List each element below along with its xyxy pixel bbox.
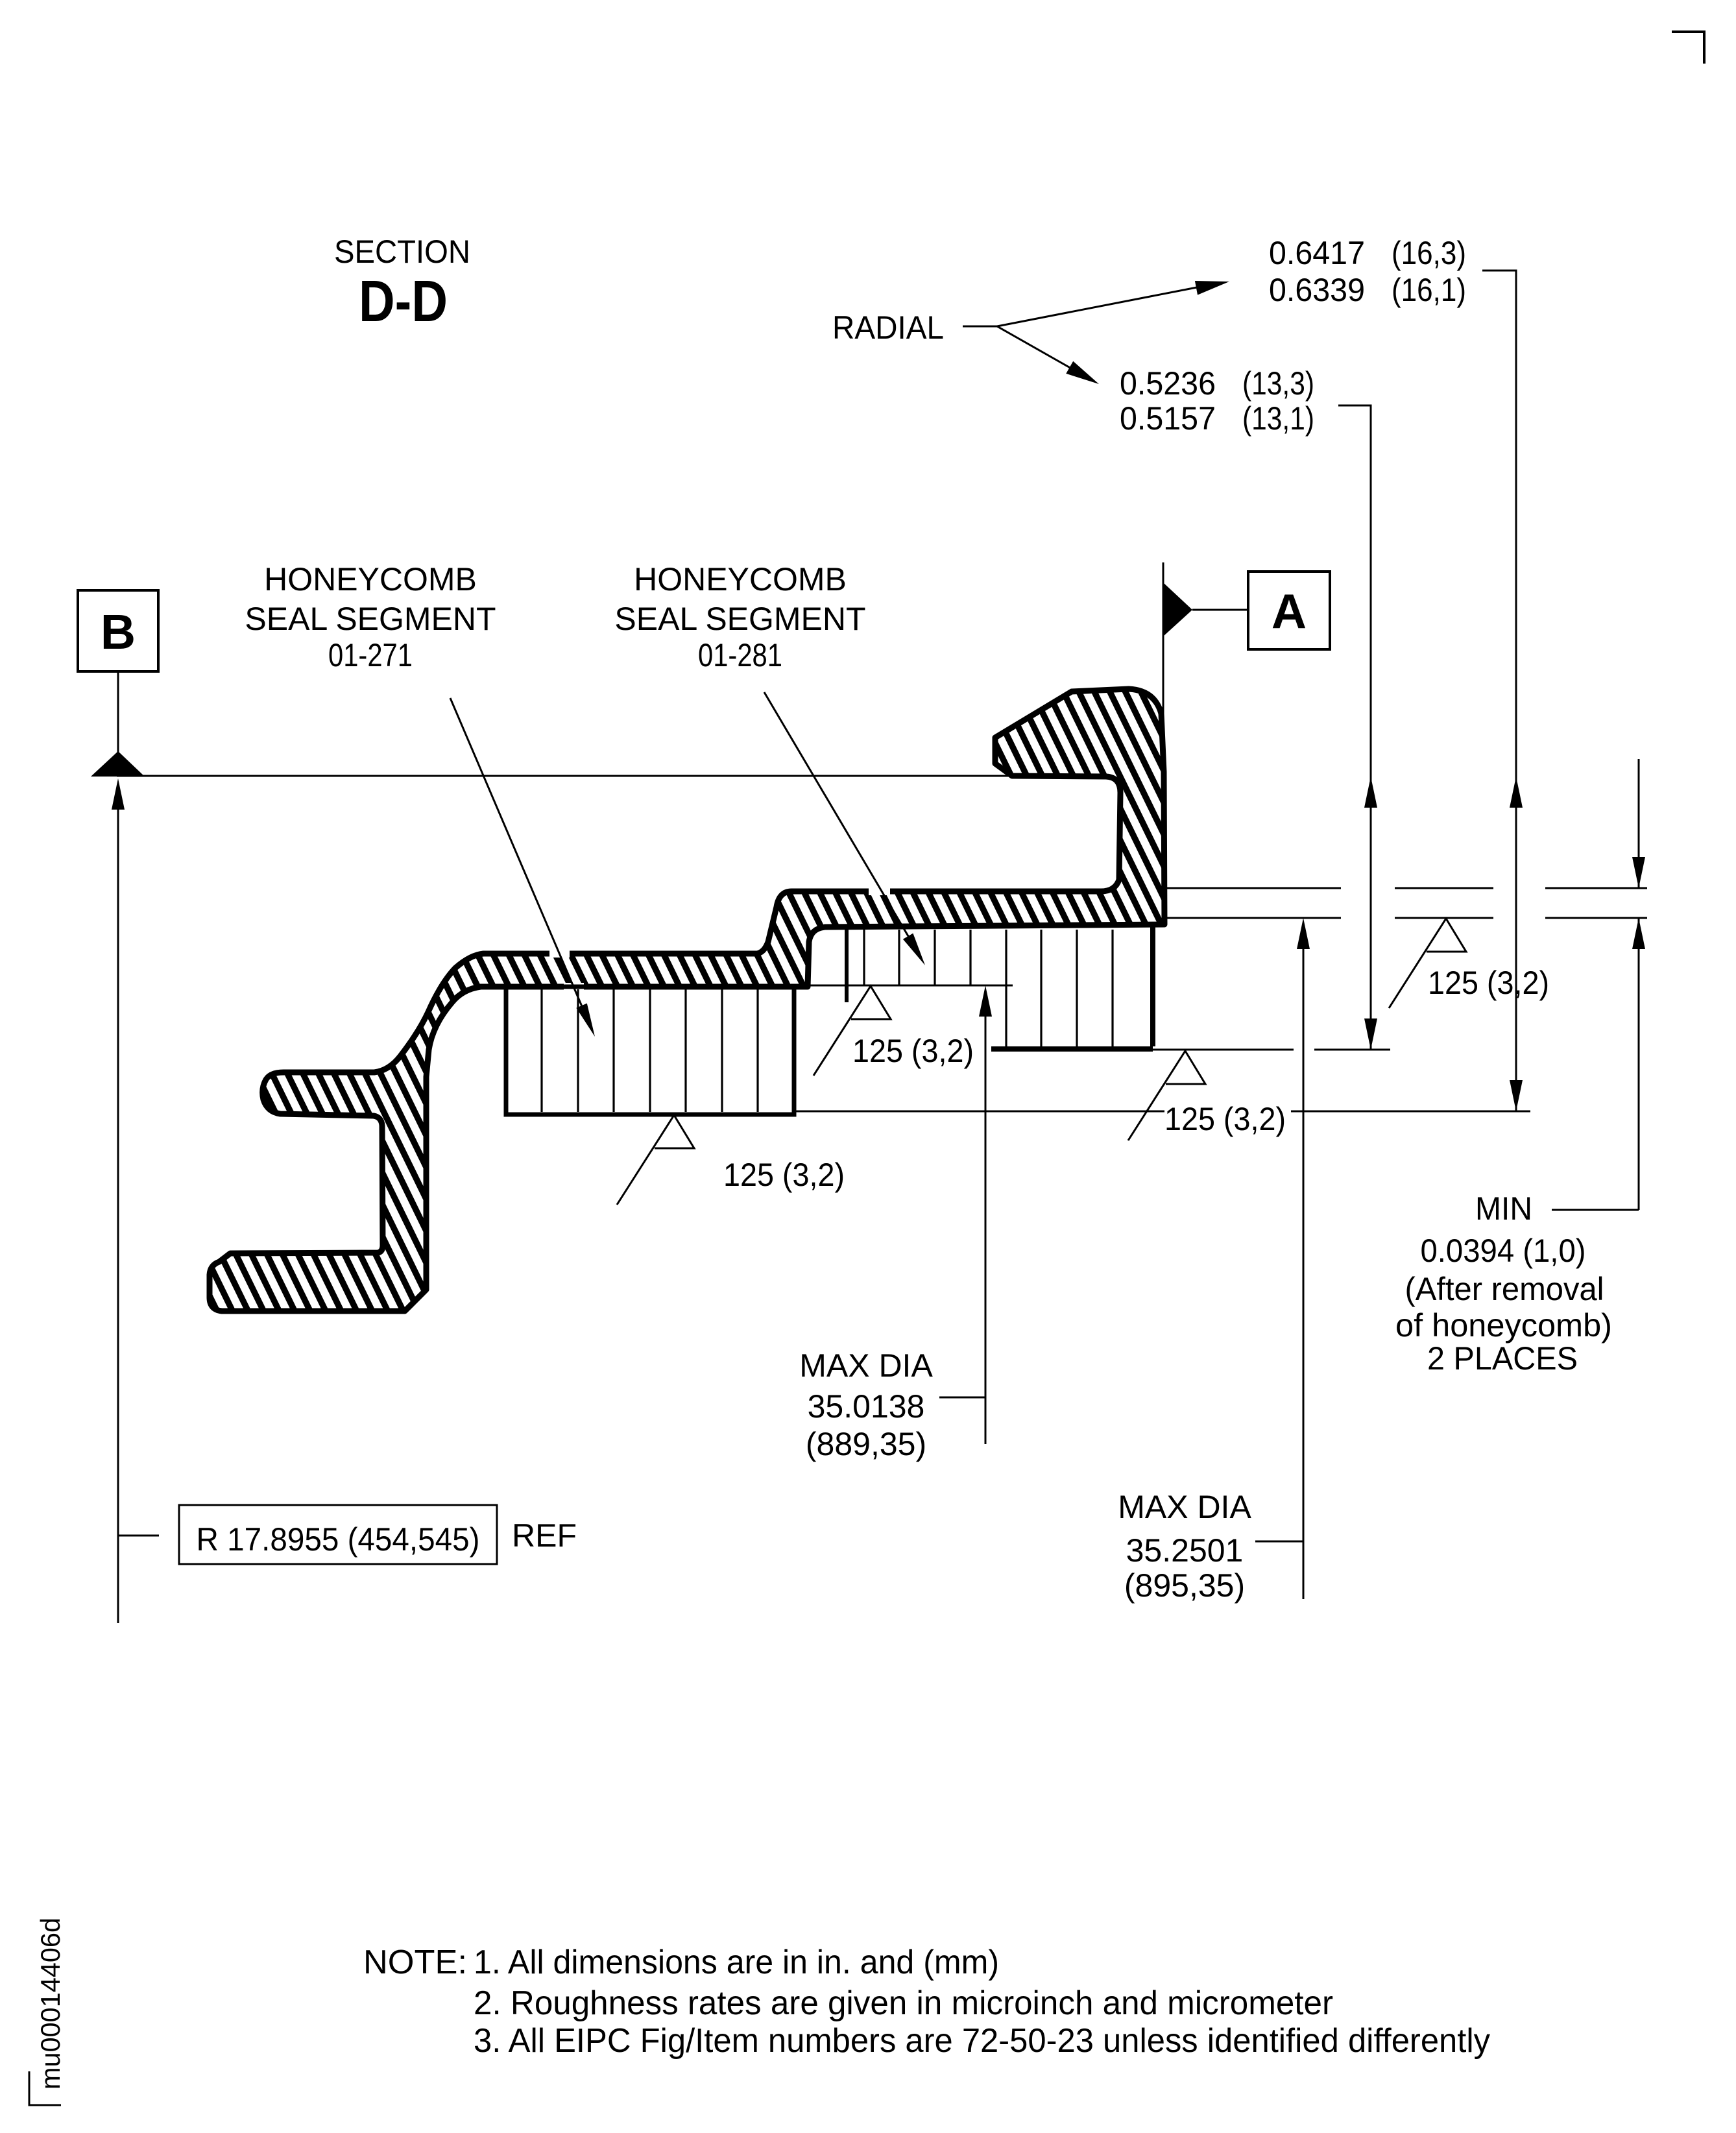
svg-text:0.6339: 0.6339 [1269, 272, 1365, 308]
svg-text:(After removal: (After removal [1405, 1271, 1604, 1307]
svg-text:35.0138: 35.0138 [808, 1388, 925, 1425]
svg-text:NOTE:: NOTE: [363, 1944, 467, 1981]
svg-text:SEAL SEGMENT: SEAL SEGMENT [614, 601, 865, 637]
svg-text:(13,3): (13,3) [1242, 365, 1314, 402]
svg-text:01-271: 01-271 [328, 637, 413, 673]
svg-text:2 PLACES: 2 PLACES [1427, 1340, 1578, 1377]
svg-text:(16,3): (16,3) [1392, 235, 1466, 271]
svg-text:0.5157: 0.5157 [1120, 400, 1216, 437]
svg-text:0.0394 (1,0): 0.0394 (1,0) [1421, 1233, 1586, 1269]
svg-text:0.5236: 0.5236 [1120, 365, 1216, 402]
svg-text:A: A [1272, 584, 1307, 638]
svg-text:1. All dimensions are in in. a: 1. All dimensions are in in. and (mm) [474, 1944, 999, 1981]
svg-text:mu00014406d: mu00014406d [35, 1918, 66, 2090]
svg-text:REF: REF [512, 1517, 577, 1554]
svg-text:2. Roughness rates are given i: 2. Roughness rates are given in microinc… [474, 1984, 1333, 2022]
svg-text:(13,1): (13,1) [1242, 400, 1314, 437]
svg-text:125 (3,2): 125 (3,2) [1428, 965, 1549, 1001]
svg-text:01-281: 01-281 [698, 637, 782, 673]
svg-text:R 17.8955 (454,545): R 17.8955 (454,545) [197, 1521, 480, 1558]
svg-text:MIN: MIN [1475, 1190, 1532, 1227]
svg-text:HONEYCOMB: HONEYCOMB [264, 561, 477, 597]
svg-text:0.6417: 0.6417 [1269, 235, 1365, 271]
svg-text:MAX DIA: MAX DIA [799, 1347, 933, 1384]
svg-text:125 (3,2): 125 (3,2) [723, 1157, 845, 1193]
svg-text:35.2501: 35.2501 [1126, 1532, 1244, 1569]
svg-text:125 (3,2): 125 (3,2) [852, 1033, 974, 1069]
svg-text:of honeycomb): of honeycomb) [1395, 1307, 1612, 1344]
svg-text:RADIAL: RADIAL [832, 309, 944, 346]
svg-text:SEAL SEGMENT: SEAL SEGMENT [245, 601, 496, 637]
svg-text:MAX DIA: MAX DIA [1118, 1489, 1251, 1525]
svg-text:(16,1): (16,1) [1392, 272, 1466, 308]
svg-text:(889,35): (889,35) [806, 1426, 926, 1462]
svg-text:D-D: D-D [359, 269, 448, 334]
svg-text:(895,35): (895,35) [1124, 1567, 1245, 1604]
svg-text:SECTION: SECTION [334, 234, 470, 270]
svg-text:B: B [101, 605, 136, 659]
svg-text:3. All EIPC Fig/Item numbers a: 3. All EIPC Fig/Item numbers are 72-50-2… [474, 2022, 1490, 2060]
svg-text:HONEYCOMB: HONEYCOMB [634, 561, 847, 597]
svg-text:125 (3,2): 125 (3,2) [1164, 1101, 1286, 1137]
